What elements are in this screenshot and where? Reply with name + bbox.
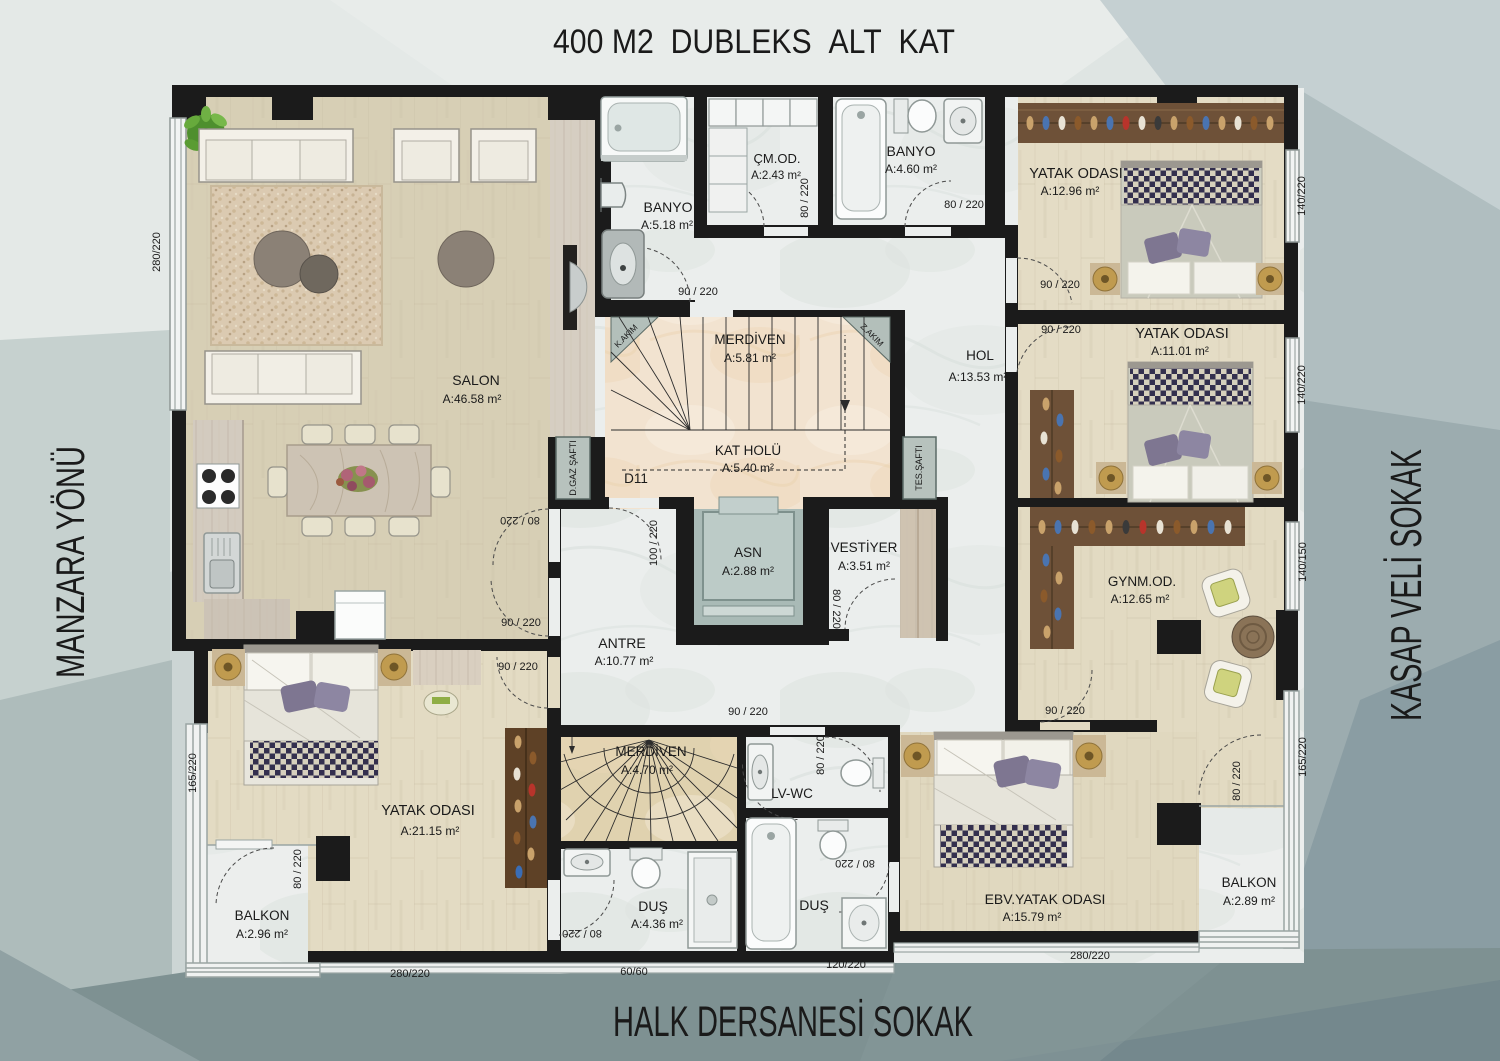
svg-text:90 / 220: 90 / 220 (501, 617, 541, 629)
svg-text:MERDİVEN: MERDİVEN (615, 744, 686, 759)
svg-text:A:4.60 m²: A:4.60 m² (885, 162, 937, 176)
svg-text:MERDİVEN: MERDİVEN (714, 332, 785, 347)
svg-text:TES.ŞAFTI: TES.ŞAFTI (914, 445, 924, 491)
svg-text:YATAK ODASI: YATAK ODASI (1135, 326, 1228, 342)
svg-text:LV-WC: LV-WC (771, 786, 813, 801)
svg-text:SALON: SALON (452, 372, 499, 388)
svg-text:90 / 220: 90 / 220 (1041, 324, 1081, 336)
svg-text:KASAP VELİ SOKAK: KASAP VELİ SOKAK (1382, 449, 1431, 721)
svg-text:HALK DERSANESİ SOKAK: HALK DERSANESİ SOKAK (613, 998, 973, 1046)
svg-text:YATAK ODASI: YATAK ODASI (381, 803, 474, 819)
svg-text:120/220: 120/220 (826, 959, 866, 971)
svg-text:BANYO: BANYO (643, 199, 692, 215)
svg-text:DUŞ: DUŞ (799, 897, 829, 913)
svg-text:80 / 220: 80 / 220 (292, 849, 304, 889)
svg-text:100 / 220: 100 / 220 (648, 520, 660, 566)
svg-text:A:5.81 m²: A:5.81 m² (724, 351, 776, 365)
svg-text:DUŞ: DUŞ (638, 898, 668, 914)
svg-text:D11: D11 (624, 471, 648, 486)
svg-text:80 / 220: 80 / 220 (944, 199, 984, 211)
svg-text:ASN: ASN (734, 545, 762, 560)
svg-text:80 / 220: 80 / 220 (799, 178, 811, 218)
svg-text:D.GAZ ŞAFTI: D.GAZ ŞAFTI (568, 440, 578, 496)
svg-text:280/220: 280/220 (1070, 950, 1110, 962)
svg-text:KAT HOLÜ: KAT HOLÜ (715, 443, 781, 458)
svg-text:MANZARA YÖNÜ: MANZARA YÖNÜ (49, 446, 93, 678)
svg-text:A:21.15 m²: A:21.15 m² (401, 824, 460, 838)
svg-text:YATAK ODASI: YATAK ODASI (1029, 166, 1122, 182)
svg-text:BALKON: BALKON (1222, 875, 1277, 890)
svg-text:A:11.01 m²: A:11.01 m² (1151, 344, 1209, 358)
svg-text:A:46.58 m²: A:46.58 m² (443, 392, 502, 406)
svg-text:165/220: 165/220 (187, 753, 199, 793)
svg-text:140/220: 140/220 (1296, 365, 1308, 405)
svg-text:280/220: 280/220 (390, 968, 430, 980)
svg-text:140/220: 140/220 (1296, 176, 1308, 216)
svg-text:80 / 220: 80 / 220 (1231, 761, 1243, 801)
svg-text:VESTİYER: VESTİYER (831, 540, 898, 555)
svg-text:HOL: HOL (966, 348, 994, 363)
svg-text:80 / 220: 80 / 220 (562, 927, 602, 939)
svg-text:80 / 220: 80 / 220 (830, 589, 842, 629)
svg-text:A:10.77 m²: A:10.77 m² (595, 654, 654, 668)
svg-text:A:3.51 m²: A:3.51 m² (838, 559, 890, 573)
svg-text:60/60: 60/60 (620, 966, 648, 978)
svg-text:A:2.88 m²: A:2.88 m² (722, 564, 774, 578)
svg-text:80 / 220: 80 / 220 (815, 735, 827, 775)
svg-text:140/150: 140/150 (1297, 542, 1309, 582)
svg-text:90 / 220: 90 / 220 (728, 706, 768, 718)
svg-text:A:2.43 m²: A:2.43 m² (751, 170, 801, 182)
svg-text:A:4.36 m²: A:4.36 m² (631, 917, 683, 931)
svg-text:A:2.96 m²: A:2.96 m² (236, 927, 288, 941)
svg-text:A:2.89 m²: A:2.89 m² (1223, 894, 1275, 908)
svg-text:A:12.96 m²: A:12.96 m² (1041, 184, 1100, 198)
svg-text:BALKON: BALKON (235, 908, 290, 923)
svg-text:A:4.70 m²: A:4.70 m² (621, 763, 673, 777)
svg-text:280/220: 280/220 (151, 232, 163, 272)
svg-text:80 / 220: 80 / 220 (500, 514, 540, 526)
svg-text:EBV.YATAK ODASI: EBV.YATAK ODASI (985, 891, 1106, 907)
svg-text:80 / 220: 80 / 220 (835, 857, 875, 869)
svg-text:A:12.65 m²: A:12.65 m² (1111, 592, 1170, 606)
svg-text:90 / 220: 90 / 220 (498, 661, 538, 673)
svg-text:165/220: 165/220 (1297, 737, 1309, 777)
svg-text:BANYO: BANYO (886, 143, 935, 159)
svg-text:A:13.53 m²: A:13.53 m² (949, 370, 1008, 384)
svg-text:A:5.40 m²: A:5.40 m² (722, 461, 774, 475)
svg-text:A:5.18 m²: A:5.18 m² (641, 218, 693, 232)
svg-text:90 / 220: 90 / 220 (678, 286, 718, 298)
svg-text:90 / 220: 90 / 220 (1045, 705, 1085, 717)
svg-text:ANTRE: ANTRE (598, 635, 645, 651)
svg-text:90 / 220: 90 / 220 (1040, 279, 1080, 291)
svg-text:400 M2 DUBLEKS ALT KAT: 400 M2 DUBLEKS ALT KAT (553, 23, 955, 61)
svg-text:A:15.79 m²: A:15.79 m² (1003, 910, 1062, 924)
svg-text:GYNM.OD.: GYNM.OD. (1108, 574, 1176, 589)
svg-text:ÇM.OD.: ÇM.OD. (754, 151, 801, 166)
